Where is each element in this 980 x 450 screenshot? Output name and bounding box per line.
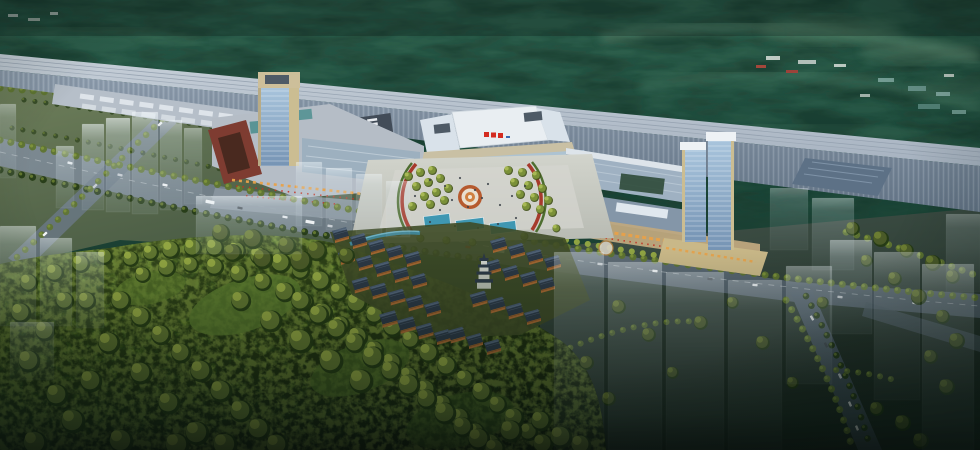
top-shade — [0, 0, 980, 36]
aerial-rendering-stage: Aerial bird's-eye architectural renderin… — [0, 0, 980, 450]
vignette — [0, 0, 980, 450]
corner-vignette — [0, 0, 980, 450]
aerial-rendering: Aerial bird's-eye architectural renderin… — [0, 0, 980, 450]
